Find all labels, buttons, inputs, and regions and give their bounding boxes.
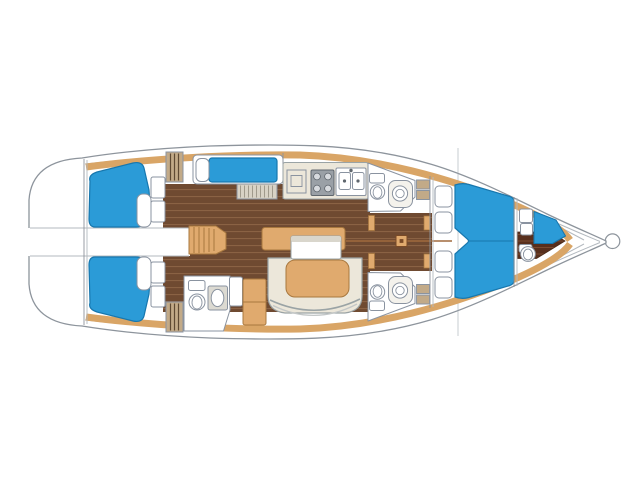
locker	[417, 295, 430, 304]
yacht-floor-plan	[0, 0, 640, 480]
companionway-steps	[189, 226, 226, 254]
locker	[417, 285, 430, 294]
settee-cushion	[286, 260, 349, 297]
locker	[151, 262, 165, 283]
toilet-tank	[370, 174, 385, 184]
locker	[417, 180, 430, 189]
burner	[314, 185, 321, 192]
bow-anchor-fitting	[605, 234, 620, 249]
pillow	[196, 159, 209, 182]
pillow	[137, 194, 151, 227]
locker	[520, 209, 533, 223]
mast-step-core	[400, 239, 404, 243]
sink-drain	[356, 179, 359, 182]
seat-locker	[230, 277, 243, 306]
door-frame	[424, 254, 430, 268]
door-frame	[369, 254, 375, 269]
faucet	[349, 169, 352, 172]
walkway	[28, 228, 190, 256]
galley	[283, 163, 368, 200]
locker	[417, 191, 430, 200]
washbasin	[392, 186, 407, 201]
burner	[314, 173, 321, 180]
single-berth	[209, 158, 277, 182]
pillow	[137, 257, 151, 290]
shelf	[435, 212, 452, 233]
toilet-tank	[189, 281, 206, 291]
shelf	[435, 186, 452, 207]
washbasin	[211, 289, 224, 306]
locker	[151, 177, 165, 198]
shelf	[435, 251, 452, 272]
locker	[151, 201, 165, 222]
door-frame	[424, 216, 430, 230]
burner	[325, 185, 332, 192]
locker	[521, 224, 533, 236]
toilet-tank	[370, 301, 385, 311]
locker	[151, 286, 165, 307]
shelf	[435, 277, 452, 298]
sink-drain	[343, 179, 346, 182]
door-frame	[369, 216, 375, 231]
burner	[325, 173, 332, 180]
table-leaf-edge	[291, 236, 341, 242]
washbasin	[392, 283, 407, 298]
